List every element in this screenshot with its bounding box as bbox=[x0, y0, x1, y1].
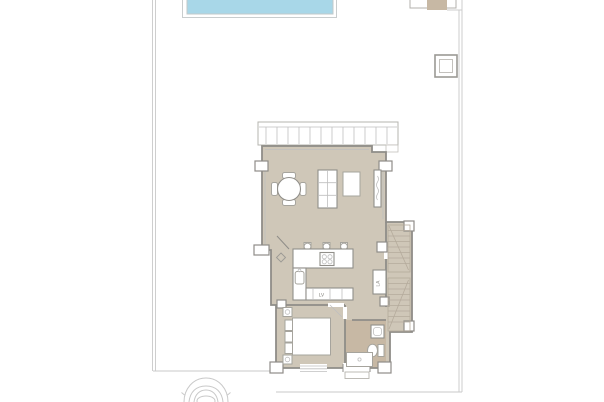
toilet-cistern bbox=[378, 345, 384, 357]
pergola-frame bbox=[258, 122, 398, 145]
cooktop-frame bbox=[320, 253, 334, 266]
pillow-2 bbox=[285, 332, 293, 343]
bed-pillows bbox=[285, 320, 293, 354]
outbuilding-roof bbox=[427, 0, 447, 10]
car-grille bbox=[197, 396, 215, 402]
shower bbox=[347, 353, 373, 367]
pillow-3 bbox=[285, 343, 293, 354]
bed bbox=[293, 318, 331, 355]
kitchen-sink bbox=[295, 269, 304, 284]
pillar-stair-top bbox=[404, 221, 414, 231]
tv-unit bbox=[374, 170, 381, 207]
laundry-closet: LA bbox=[373, 270, 386, 294]
cooktop bbox=[320, 253, 334, 266]
car bbox=[182, 378, 231, 402]
shower-tray bbox=[347, 353, 373, 367]
car-mirror-left bbox=[182, 393, 185, 396]
sofa bbox=[343, 172, 360, 196]
pillar-bedroom-corner bbox=[277, 300, 286, 308]
nightstand-bottom bbox=[283, 355, 292, 364]
outbuilding bbox=[410, 0, 456, 10]
pillar-living-left bbox=[255, 161, 268, 171]
swimming-pool bbox=[183, 0, 337, 18]
label-washer: LA bbox=[376, 280, 382, 287]
floor-plan-drawing: LV LA bbox=[0, 0, 604, 402]
sink-basin bbox=[295, 272, 304, 285]
bedroom-window-opening bbox=[300, 364, 327, 372]
chair-west bbox=[272, 183, 278, 196]
pillar-hall-upper bbox=[377, 242, 387, 252]
utility-box bbox=[435, 55, 457, 77]
pillow-1 bbox=[285, 320, 293, 331]
nightstand-bottom-body bbox=[283, 355, 292, 364]
pillar-bottom-right bbox=[378, 362, 391, 373]
pillar-stair-bottom bbox=[404, 321, 414, 331]
utility-box-inner bbox=[440, 60, 453, 73]
dining-table-rect bbox=[318, 170, 337, 208]
pergola-right-step bbox=[386, 145, 398, 152]
pillar-bottom-left bbox=[270, 362, 283, 373]
pool-water bbox=[187, 0, 333, 14]
nightstand-top bbox=[283, 308, 292, 317]
table-top bbox=[278, 178, 301, 201]
label-dishwasher: LV bbox=[319, 293, 325, 299]
nightstand-top-body bbox=[283, 308, 292, 317]
bathroom-sink bbox=[371, 325, 384, 338]
entrance-step bbox=[345, 372, 369, 379]
pillar-kitchen-left bbox=[254, 245, 269, 255]
floor-plan-canvas: LV LA bbox=[0, 0, 604, 402]
car-mirror-right bbox=[228, 393, 231, 396]
bathroom-door-opening bbox=[343, 307, 347, 319]
sink-cabinet bbox=[371, 325, 384, 338]
